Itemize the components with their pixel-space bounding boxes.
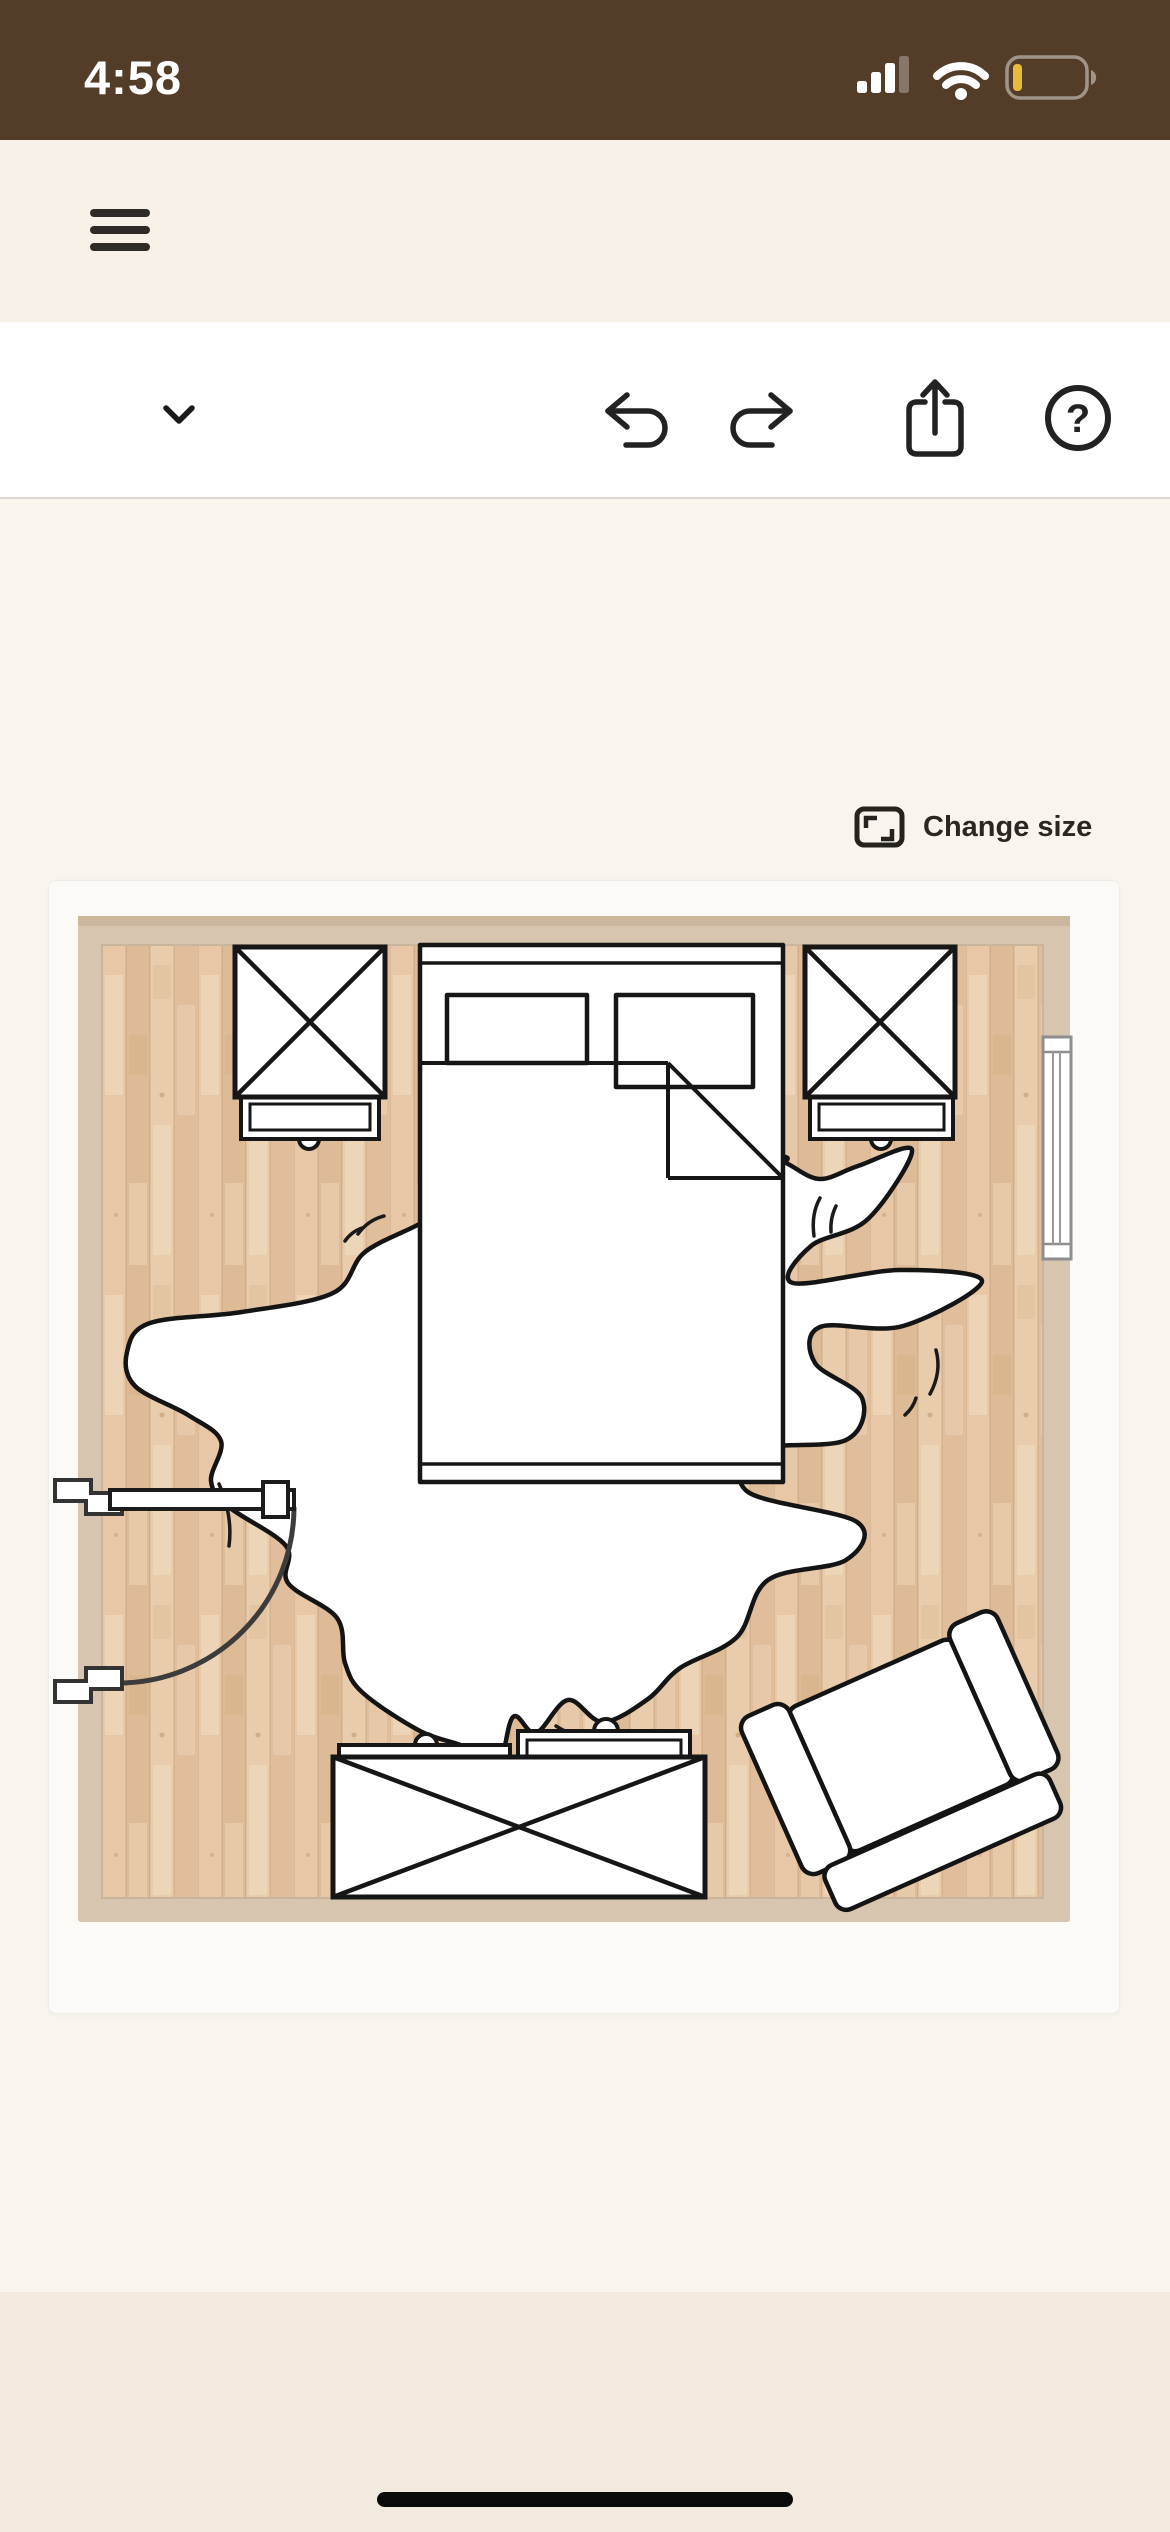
nightstand-left[interactable] bbox=[235, 947, 385, 1149]
wifi-icon bbox=[937, 66, 985, 100]
help-button[interactable]: ? bbox=[1048, 388, 1108, 448]
battery-icon bbox=[1007, 57, 1096, 98]
home-indicator[interactable] bbox=[377, 2492, 793, 2507]
cellular-icon bbox=[857, 56, 909, 93]
bed[interactable] bbox=[420, 945, 783, 1482]
wall-top-shadow bbox=[78, 916, 1070, 926]
pillow-left bbox=[447, 995, 587, 1063]
knob bbox=[299, 1139, 319, 1149]
status-time: 4:58 bbox=[58, 50, 208, 105]
change-size-label: Change size bbox=[923, 811, 1092, 844]
header: spoak. 4 Priv... / Bedro... bbox=[0, 140, 1170, 322]
app-screen: 4:58 spoak. bbox=[0, 0, 1170, 2532]
resize-icon bbox=[853, 805, 905, 849]
file-chevron-icon bbox=[162, 403, 196, 427]
share-button[interactable] bbox=[909, 382, 961, 454]
window[interactable] bbox=[1043, 1037, 1071, 1259]
door-edge bbox=[263, 1482, 288, 1517]
nightstand-right[interactable] bbox=[805, 947, 955, 1149]
hamburger-icon bbox=[90, 209, 150, 217]
status-bar: 4:58 bbox=[0, 0, 1170, 140]
editor-canvas[interactable]: Change size bbox=[0, 499, 1170, 2292]
knob bbox=[871, 1139, 891, 1149]
file-toolbar-icons: ? bbox=[570, 362, 1170, 472]
floorplan[interactable] bbox=[48, 880, 1118, 2012]
file-toolbar: File ? bbox=[0, 322, 1170, 499]
undo-button[interactable] bbox=[608, 395, 665, 445]
file-menu-button[interactable] bbox=[60, 382, 240, 442]
redo-button[interactable] bbox=[733, 395, 790, 445]
status-icons bbox=[845, 30, 1105, 150]
dresser[interactable] bbox=[333, 1757, 705, 1897]
pillow-right bbox=[616, 995, 753, 1087]
svg-text:?: ? bbox=[1066, 397, 1090, 441]
change-size-button[interactable]: Change size bbox=[853, 803, 1092, 851]
